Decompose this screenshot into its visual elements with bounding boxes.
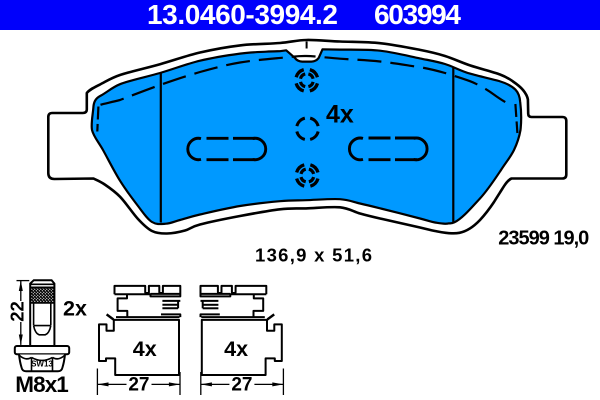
svg-text:13.0460-3994.2: 13.0460-3994.2 bbox=[147, 0, 338, 30]
svg-text:2x: 2x bbox=[63, 296, 87, 320]
svg-text:4x: 4x bbox=[224, 337, 248, 361]
svg-text:22: 22 bbox=[6, 301, 27, 322]
svg-text:4x: 4x bbox=[326, 101, 354, 129]
svg-text:603994: 603994 bbox=[374, 0, 461, 30]
svg-text:27: 27 bbox=[231, 375, 252, 396]
svg-text:27: 27 bbox=[128, 375, 149, 396]
svg-text:M8x1: M8x1 bbox=[15, 372, 69, 397]
svg-text:4x: 4x bbox=[133, 337, 157, 361]
svg-text:23599 19,0: 23599 19,0 bbox=[498, 228, 589, 250]
svg-text:136,9 x 51,6: 136,9 x 51,6 bbox=[255, 244, 372, 265]
svg-text:SW13: SW13 bbox=[31, 360, 53, 369]
